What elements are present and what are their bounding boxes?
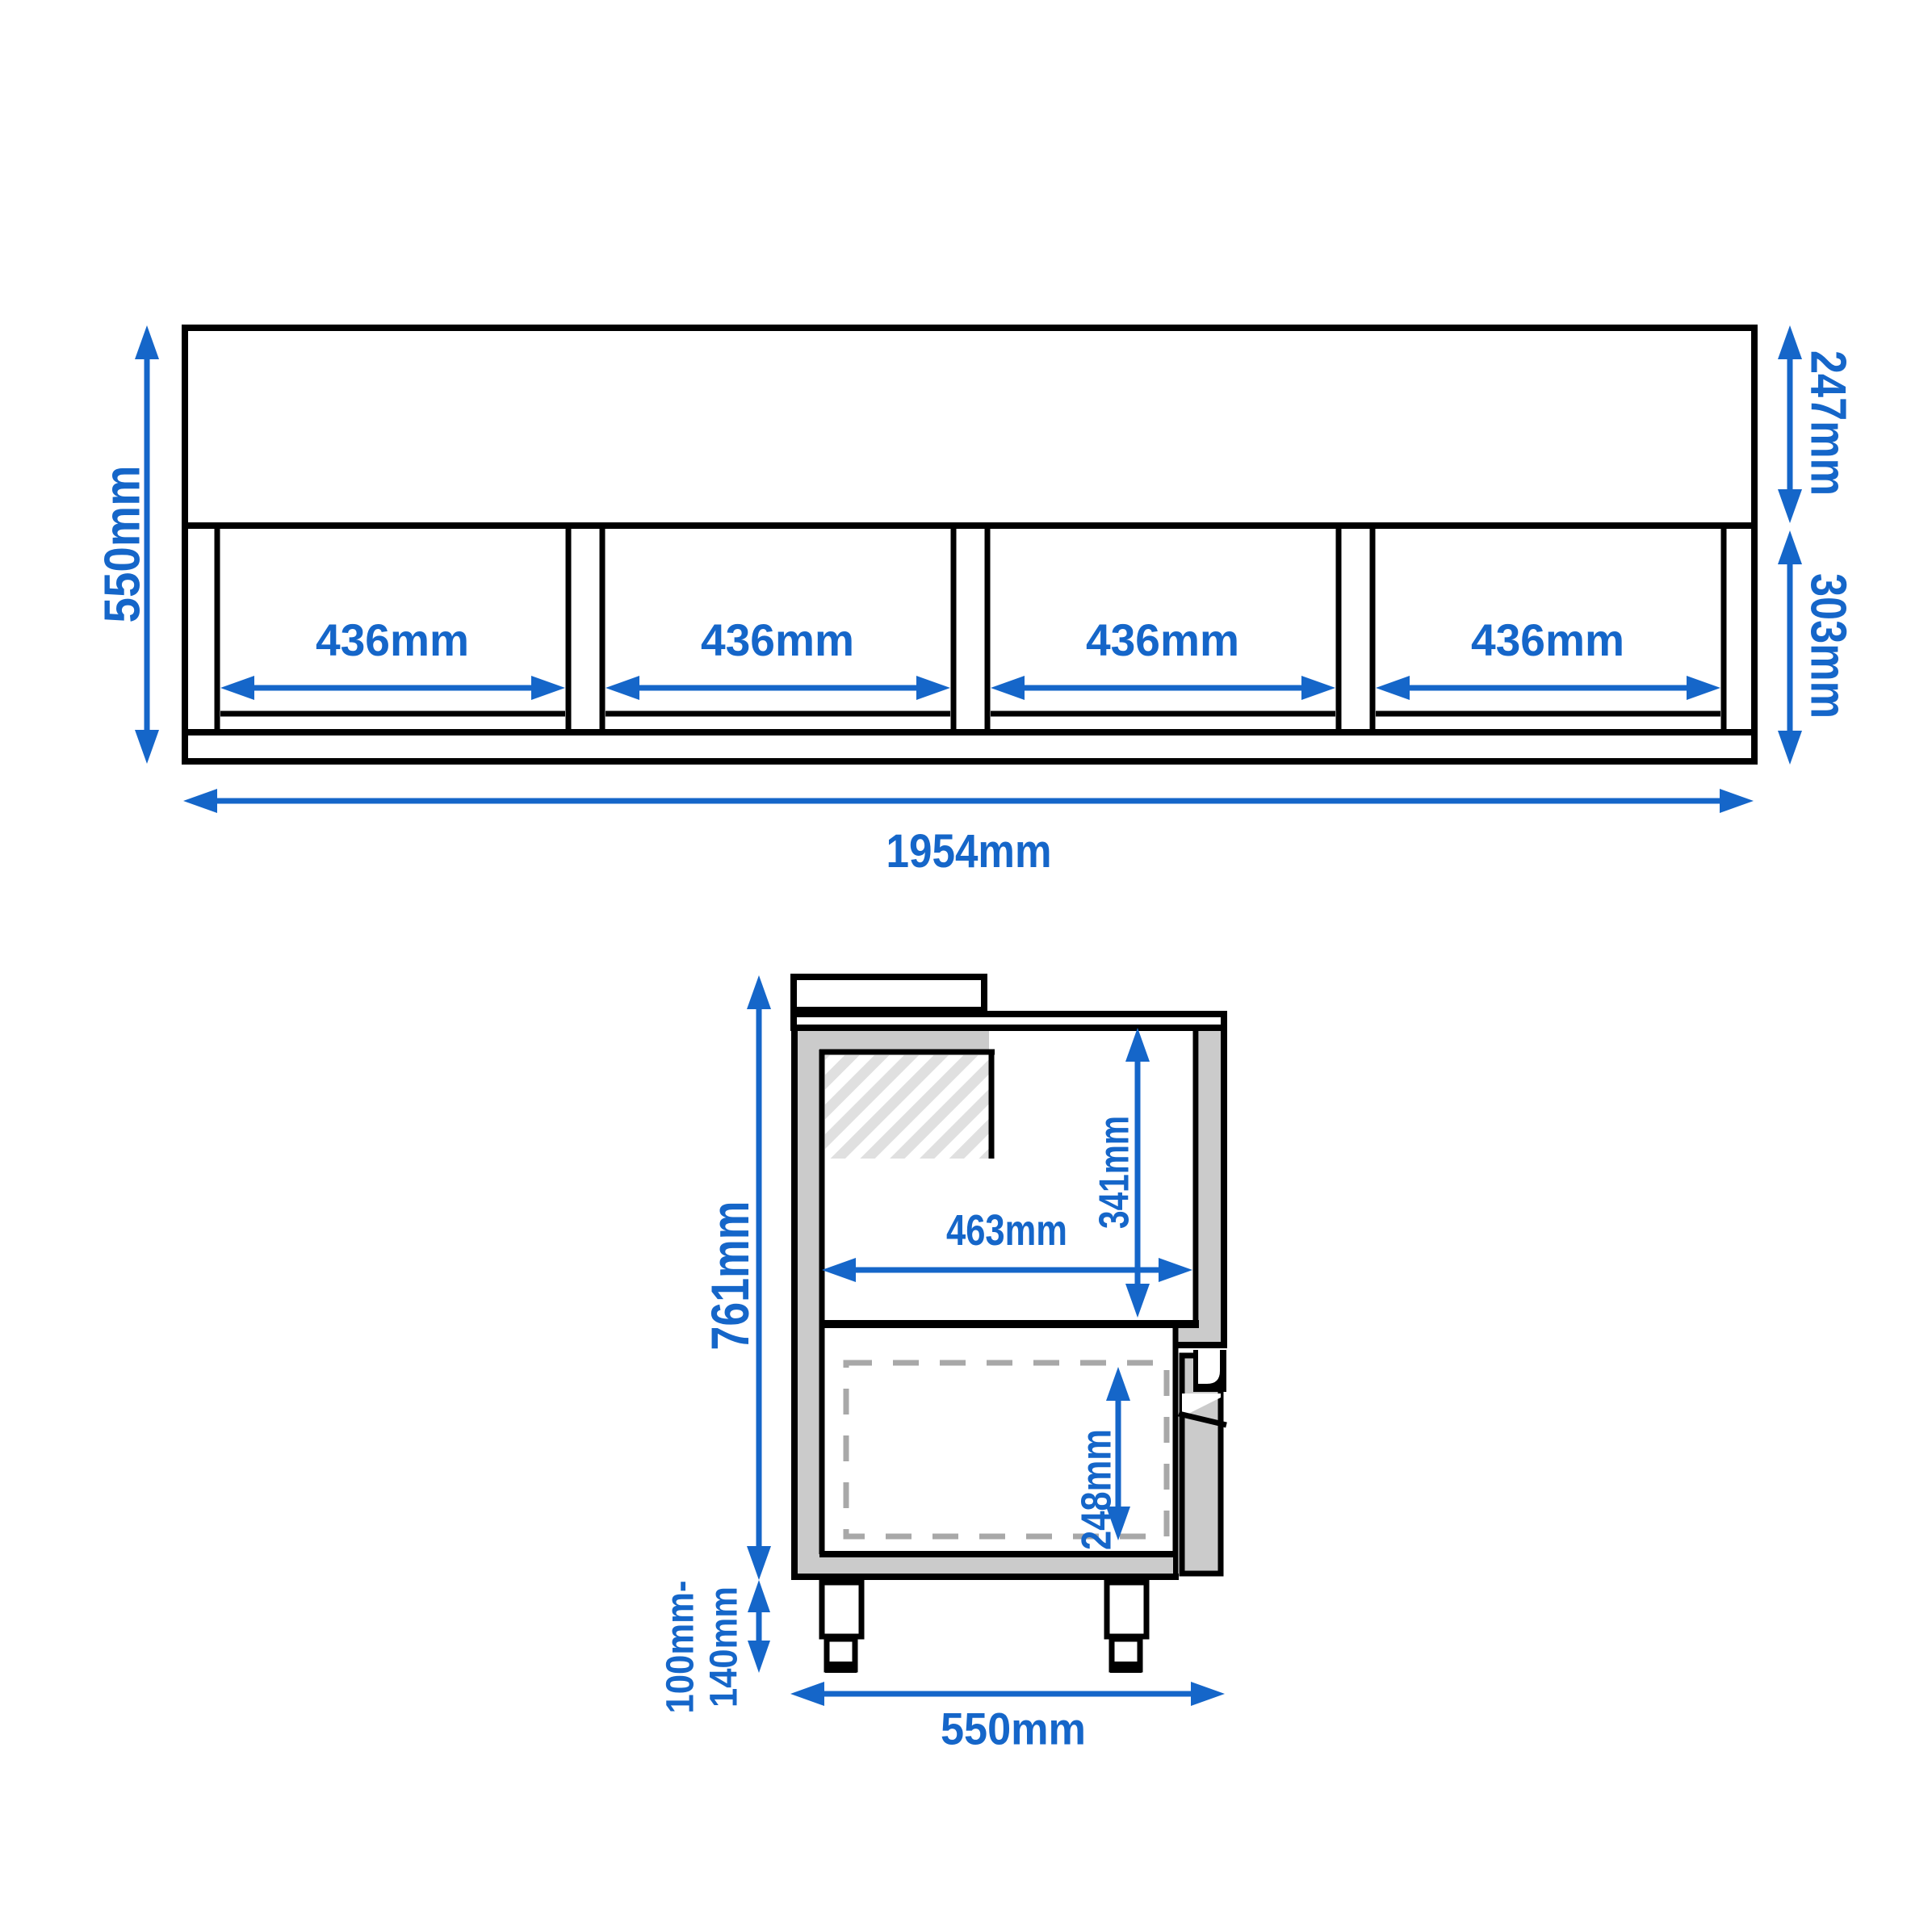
side-backsplash [794, 977, 984, 1010]
front-opening-2-label: 436mm [701, 614, 854, 665]
arrowhead-up [747, 975, 771, 1009]
dim-side-overall-depth: 550mm [790, 1682, 1225, 1754]
arrowhead-down [747, 1546, 771, 1580]
arrowhead-right [1191, 1682, 1225, 1706]
front-opening-4-label: 436mm [1471, 614, 1624, 665]
leg-foot-cap [825, 1662, 857, 1673]
side-leg-right [1107, 1582, 1146, 1673]
dim-side-overall-height: 761mm [700, 975, 771, 1580]
arrowhead-up [135, 325, 159, 359]
arrowhead-down [1778, 731, 1802, 765]
arrowhead-up [748, 1580, 770, 1612]
dim-front-overall-width: 1954mm [183, 789, 1754, 878]
side-leg-height-label-min: 100mm- [659, 1581, 702, 1714]
dim-front-overall-height: 550mm [94, 325, 159, 764]
front-overall-width-label: 1954mm [886, 825, 1052, 878]
technical-drawing-page: 550mm 247mm 303mm 436mm 436mm [0, 0, 1932, 1932]
arrowhead-up [1106, 1367, 1130, 1401]
dim-front-lower-section: 303mm [1778, 530, 1856, 765]
side-door [1179, 1350, 1226, 1574]
side-leg-left [822, 1582, 861, 1673]
side-drawer-height-label: 248mm [1074, 1429, 1121, 1550]
side-interior-height-label: 341mm [1092, 1116, 1138, 1229]
arrowhead-down [1125, 1284, 1150, 1318]
front-lower-section-label: 303mm [1800, 573, 1856, 719]
dim-side-drawer-height: 248mm [1074, 1367, 1130, 1550]
arrowhead-left [183, 789, 217, 813]
side-bottom-band [798, 1557, 1173, 1574]
arrowhead-right [1159, 1258, 1192, 1282]
front-outer-body [185, 328, 1754, 761]
arrowhead-up [1778, 325, 1802, 359]
dim-side-leg-height: 100mm- 140mm [659, 1580, 770, 1714]
side-view: 761mm 341mm 463mm 248mm [659, 975, 1227, 1754]
front-opening-3-label: 436mm [1086, 614, 1239, 665]
side-overall-depth-label: 550mm [941, 1703, 1086, 1754]
arrowhead-right [1720, 789, 1754, 813]
door-handle-notch [1198, 1350, 1220, 1384]
front-overall-height-label: 550mm [94, 466, 150, 623]
arrowhead-down [1778, 489, 1802, 523]
leg-foot-cap [1110, 1662, 1142, 1673]
side-left-wall [798, 1031, 819, 1574]
side-countertop [794, 1014, 1224, 1028]
arrowhead-left [822, 1258, 856, 1282]
technical-drawing: 550mm 247mm 303mm 436mm 436mm [0, 0, 1932, 1932]
front-upper-section-label: 247mm [1800, 350, 1856, 496]
arrowhead-down [748, 1641, 770, 1673]
side-hatch-area [825, 1055, 989, 1159]
front-view: 550mm 247mm 303mm 436mm 436mm [94, 325, 1855, 878]
side-overall-height-label: 761mm [700, 1201, 760, 1351]
side-top-band [819, 1031, 989, 1052]
dim-front-upper-section: 247mm [1778, 325, 1856, 523]
side-step [1176, 1326, 1221, 1344]
arrowhead-down [135, 730, 159, 764]
arrowhead-left [790, 1682, 824, 1706]
arrowhead-up [1778, 530, 1802, 564]
side-interior-width-label: 463mm [946, 1206, 1067, 1255]
arrowhead-up [1125, 1028, 1150, 1062]
side-leg-height-label-max: 140mm [702, 1586, 745, 1708]
front-opening-1-label: 436mm [316, 614, 469, 665]
side-right-wall [1199, 1031, 1221, 1343]
dim-side-interior-height: 341mm [1092, 1028, 1150, 1318]
